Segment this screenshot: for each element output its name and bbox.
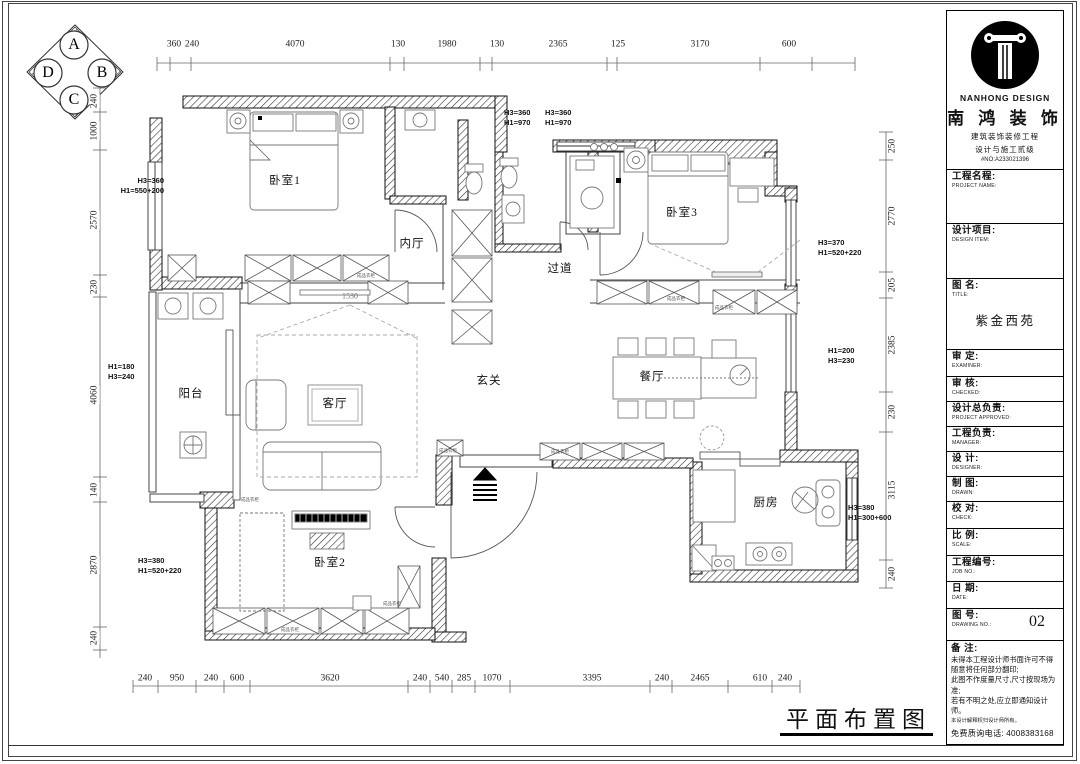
dim-bot-12: 610 bbox=[752, 674, 768, 684]
field-scale: 比 例: SCALE: bbox=[947, 528, 1063, 555]
brand-line2: 设计与施工贰级 bbox=[975, 144, 1035, 155]
room-label-entry: 玄关 bbox=[477, 372, 502, 388]
dim-right-6: 240 bbox=[888, 567, 898, 581]
dim-top-8: 3170 bbox=[690, 40, 711, 50]
brand-license-no: #NO:A233021396 bbox=[981, 157, 1029, 163]
annotation-right-lower: H3=380H1=300+600 bbox=[848, 503, 891, 523]
dim-top-2: 4070 bbox=[285, 40, 306, 50]
floorplan-sheet: { "drawing_title": "平面布置图", "compass": {… bbox=[0, 0, 1080, 764]
dim-right-1: 2770 bbox=[888, 207, 898, 226]
dim-bot-9: 3395 bbox=[582, 674, 603, 684]
dim-right-5: 3115 bbox=[888, 481, 898, 500]
brand-line1: 建筑装饰装修工程 bbox=[971, 131, 1039, 142]
dim-top-1: 240 bbox=[184, 40, 200, 50]
wardrobe-label: 成品衣柜 bbox=[667, 296, 685, 302]
dim-top-3: 130 bbox=[390, 40, 406, 50]
annotation-top-mid-1: H3=360H1=970 bbox=[504, 108, 530, 128]
dim-right-2: 205 bbox=[888, 278, 898, 292]
dim-bot-10: 240 bbox=[654, 674, 670, 684]
field-job-no: 工程编号: JOB NO.: bbox=[947, 555, 1063, 581]
room-label-dining: 餐厅 bbox=[640, 368, 665, 384]
dim-top-9: 600 bbox=[781, 40, 797, 50]
room-label-corridor: 过道 bbox=[548, 260, 573, 276]
brand-name-cn: 南 鸿 装 饰 bbox=[947, 104, 1063, 129]
dim-bot-8: 1070 bbox=[482, 674, 503, 684]
fine-print: 本设计解释权归设计师所有。 bbox=[951, 718, 1059, 725]
compass-letter-c: C bbox=[69, 91, 80, 109]
annotation-left-mid: H1=180H3=240 bbox=[108, 362, 134, 382]
field-project-approved: 设计总负责: PROJECT APPROVED: bbox=[947, 401, 1063, 426]
annotation-right-mid: H1=200H3=230 bbox=[828, 346, 854, 366]
entry-marker-icon bbox=[473, 468, 497, 500]
top-dim-ticks bbox=[157, 57, 855, 71]
dim-right-0: 250 bbox=[888, 139, 898, 153]
notes-section: 备 注: 未得本工程设计师书面许可不得随意将任何部分翻印; 此图不作度量尺寸,尺… bbox=[947, 640, 1063, 744]
compass-letter-b: B bbox=[97, 64, 108, 82]
annotation-living-width: 1530 bbox=[342, 292, 358, 301]
service-phone: 免费质询电话: 4008383168 bbox=[951, 728, 1059, 742]
wardrobe-label: 成品衣柜 bbox=[241, 497, 259, 503]
dim-top-4: 1980 bbox=[437, 40, 458, 50]
field-manager: 工程负责: MANAGER: bbox=[947, 426, 1063, 451]
dim-top-0: 360 bbox=[166, 40, 182, 50]
title-block: NANHONG DESIGN 南 鸿 装 饰 建筑装饰装修工程 设计与施工贰级 … bbox=[946, 10, 1064, 745]
dim-left-2: 2570 bbox=[90, 211, 100, 230]
field-checked: 审 核: CHECKED: bbox=[947, 376, 1063, 401]
dim-bot-11: 2465 bbox=[690, 674, 711, 684]
wardrobe-label: 成品衣柜 bbox=[551, 449, 569, 455]
wardrobe-label: 成品衣柜 bbox=[357, 273, 375, 279]
compass-letter-a: A bbox=[68, 36, 80, 54]
dim-bot-1: 950 bbox=[169, 674, 185, 684]
dim-bot-2: 240 bbox=[203, 674, 219, 684]
company-logo-block: NANHONG DESIGN 南 鸿 装 饰 建筑装饰装修工程 设计与施工贰级 … bbox=[947, 11, 1063, 169]
annotation-left-lower: H3=380H1=520+220 bbox=[138, 556, 181, 576]
project-title-value: 紫金西苑 bbox=[952, 310, 1059, 329]
note-line: 未得本工程设计师书面许可不得随意将任何部分翻印; bbox=[951, 655, 1059, 675]
dim-bot-6: 540 bbox=[434, 674, 450, 684]
dim-bot-0: 240 bbox=[137, 674, 153, 684]
dim-left-3: 230 bbox=[90, 280, 100, 294]
dim-right-4: 230 bbox=[888, 405, 898, 419]
room-label-bedroom3: 卧室3 bbox=[666, 204, 698, 220]
room-label-bedroom2: 卧室2 bbox=[314, 554, 346, 570]
dim-top-6: 2365 bbox=[548, 40, 569, 50]
wardrobe-label: 成品衣柜 bbox=[383, 601, 401, 607]
compass-letter-d: D bbox=[42, 64, 54, 82]
dim-left-1: 1000 bbox=[90, 122, 100, 141]
drawing-title-underline bbox=[780, 733, 933, 736]
drawing-number-value: 02 bbox=[1029, 613, 1045, 631]
wardrobe-label: 成品衣柜 bbox=[715, 305, 733, 311]
dim-bot-3: 600 bbox=[229, 674, 245, 684]
drawing-title: 平面布置图 bbox=[786, 700, 931, 734]
dim-bot-7: 285 bbox=[456, 674, 472, 684]
dim-left-4: 4060 bbox=[90, 386, 100, 405]
note-line: 若有不明之处,应立即通知设计师。 bbox=[951, 696, 1059, 716]
annotation-top-mid-2: H3=360H1=970 bbox=[545, 108, 571, 128]
field-examiner: 审 定: EXAMINER: bbox=[947, 349, 1063, 376]
field-date: 日 期: DATE: bbox=[947, 581, 1063, 608]
wardrobe-label: 成品衣柜 bbox=[281, 627, 299, 633]
dim-left-5: 140 bbox=[90, 483, 100, 497]
room-label-balcony: 阳台 bbox=[179, 385, 204, 401]
nanhong-logo-icon bbox=[969, 19, 1041, 91]
annotation-right-upper: H3=370H1=520+220 bbox=[818, 238, 861, 258]
field-design-item: 设计项目: DESIGN ITEM: bbox=[947, 223, 1063, 278]
room-label-kitchen: 厨房 bbox=[754, 494, 779, 510]
dim-bot-4: 3620 bbox=[320, 674, 341, 684]
dim-left-0: 240 bbox=[90, 94, 100, 108]
field-drawing-no: 图 号: DRAWING NO.: 02 bbox=[947, 608, 1063, 640]
dim-bot-5: 240 bbox=[412, 674, 428, 684]
dim-left-6: 2870 bbox=[90, 556, 100, 575]
annotation-left-upper: H3=360H1=550+200 bbox=[108, 176, 164, 196]
field-project-name: 工程名程: PROJECT NAME: bbox=[947, 169, 1063, 223]
wardrobe-label: 成品衣柜 bbox=[439, 448, 457, 454]
field-drawn: 制 图: DRAWN: bbox=[947, 476, 1063, 501]
field-check: 校 对: CHECK: bbox=[947, 501, 1063, 528]
room-label-living: 客厅 bbox=[323, 395, 348, 411]
brand-name-en: NANHONG DESIGN bbox=[960, 93, 1050, 103]
dim-bot-13: 240 bbox=[777, 674, 793, 684]
field-designer: 设 计: DESIGNER: bbox=[947, 451, 1063, 476]
room-label-bedroom1: 卧室1 bbox=[269, 172, 301, 188]
field-title: 图 名: TITLE: 紫金西苑 bbox=[947, 278, 1063, 349]
room-label-inner-hall: 内厅 bbox=[400, 235, 425, 251]
dim-top-7: 125 bbox=[610, 40, 626, 50]
note-line: 此图不作度量尺寸,尺寸按现场为准; bbox=[951, 675, 1059, 695]
dim-left-7: 240 bbox=[90, 631, 100, 645]
dim-top-5: 130 bbox=[489, 40, 505, 50]
dim-right-3: 2385 bbox=[888, 336, 898, 355]
floor-plan bbox=[0, 0, 940, 764]
